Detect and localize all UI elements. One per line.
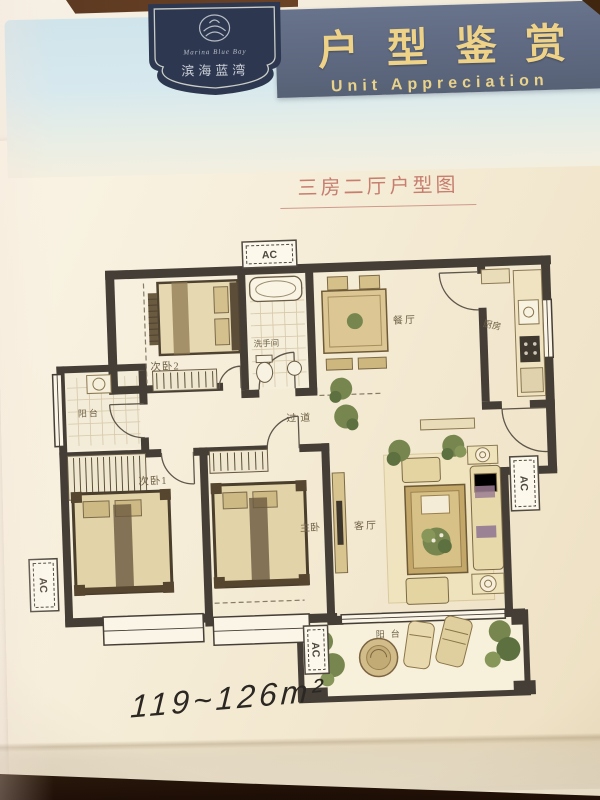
plan-title: 三房二厅户型图 <box>280 168 477 209</box>
logo-badge: Marina Blue Bay 滨海蓝湾 <box>145 2 285 104</box>
badge-name-cn: 滨海蓝湾 <box>181 62 249 78</box>
ac-label-left: AC <box>37 577 50 593</box>
balcony-table <box>359 638 398 677</box>
badge-name-en: Marina Blue Bay <box>182 47 246 56</box>
label-balcony-left: 阳台 <box>78 407 100 419</box>
photo-of-floorplan-brochure: 户型鉴赏 Unit Appreciation Marina Blue Bay 滨… <box>0 0 600 800</box>
washing-machine <box>87 375 112 394</box>
dining-plants <box>329 377 359 431</box>
label-bedroom2: 次卧2 <box>150 359 180 373</box>
kitchen-counter <box>481 268 545 398</box>
floor-plan: AC AC AC AC 次卧2 洗手间 餐厅 厨房 阳台 过道 次卧1 主卧 客… <box>12 224 598 714</box>
bedroom1-bed <box>71 489 175 596</box>
label-living: 客厅 <box>354 518 378 532</box>
label-master: 主卧 <box>300 521 320 535</box>
label-dining: 餐厅 <box>393 313 417 327</box>
label-balcony-bottom: 阳台 <box>376 628 406 640</box>
master-bed <box>210 480 310 588</box>
bathtub <box>249 276 302 302</box>
label-bedroom1: 次卧1 <box>138 474 168 488</box>
bedroom2-bed <box>147 280 239 355</box>
ac-label-balcony: AC <box>309 642 322 658</box>
living-room-set <box>330 417 504 607</box>
dining-set <box>321 275 388 370</box>
header-band: 户型鉴赏 Unit Appreciation <box>275 0 600 98</box>
ac-label-top: AC <box>262 249 278 262</box>
ac-label-right: AC <box>517 476 530 492</box>
label-corridor: 过道 <box>286 411 314 425</box>
header-title-cn: 户型鉴赏 <box>317 8 600 77</box>
label-bathroom: 洗手间 <box>253 338 279 349</box>
